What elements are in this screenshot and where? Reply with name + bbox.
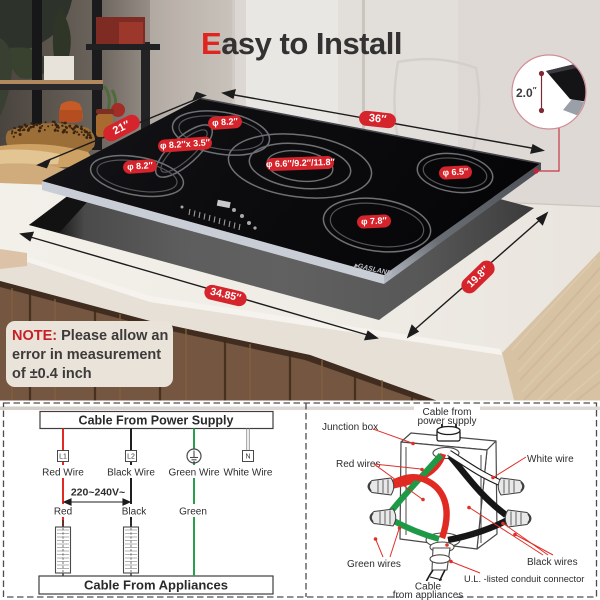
svg-text:L2: L2 <box>127 454 135 461</box>
svg-text:220~240V~: 220~240V~ <box>71 487 125 499</box>
svg-text:Red Wire: Red Wire <box>42 468 84 479</box>
svg-text:Green wires: Green wires <box>347 559 401 570</box>
svg-text:Black Wire: Black Wire <box>107 468 155 479</box>
svg-text:N: N <box>245 454 250 461</box>
svg-text:Junction box: Junction box <box>322 422 378 433</box>
svg-text:Black: Black <box>122 507 147 518</box>
svg-text:Green: Green <box>179 507 207 518</box>
svg-text:from appliances: from appliances <box>393 590 464 600</box>
svg-text:Green Wire: Green Wire <box>168 468 220 479</box>
svg-text:Red wires: Red wires <box>336 459 380 470</box>
svg-text:Black wires: Black wires <box>527 557 578 568</box>
svg-text:L1: L1 <box>59 454 67 461</box>
svg-text:U.L. -listed conduit connector: U.L. -listed conduit connector <box>464 574 584 584</box>
svg-text:Cable From Power Supply: Cable From Power Supply <box>79 414 234 428</box>
svg-text:White Wire: White Wire <box>224 468 273 479</box>
svg-text:White wire: White wire <box>527 454 574 465</box>
svg-text:Cable From Appliances: Cable From Appliances <box>84 578 228 593</box>
svg-text:power supply: power supply <box>418 416 477 427</box>
svg-text:Red: Red <box>54 507 72 518</box>
